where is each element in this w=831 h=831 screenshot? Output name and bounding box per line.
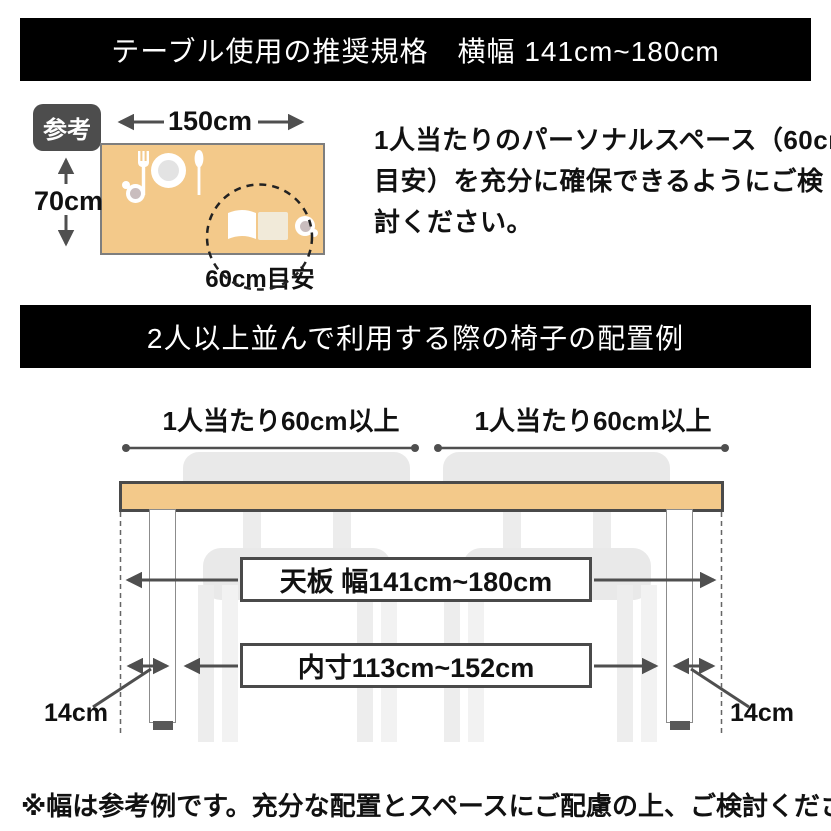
table-foot-left [153, 721, 173, 730]
cup-handle [122, 181, 130, 189]
chair-leg [641, 585, 657, 742]
note-line-2: 目安）を充分に確保できるようにご検 [374, 161, 824, 202]
tabletop-sideview [119, 481, 724, 512]
table-foot-right [670, 721, 690, 730]
chair-leg [222, 585, 238, 742]
depth-dimension-label: 70cm [34, 186, 100, 217]
plate-icon [151, 153, 186, 188]
chair-leg [617, 585, 633, 742]
reference-badge: 参考 [33, 104, 101, 151]
width-dimension-label: 150cm [160, 106, 260, 137]
note-line-3: 討ください。 [374, 202, 824, 243]
infographic-canvas: テーブル使用の推奨規格 横幅 141cm~180cm 参考 150cm 70cm… [0, 0, 831, 831]
per-person-label-left: 1人当たり60cm以上 [158, 401, 404, 438]
book-icon [227, 209, 291, 243]
plate-inner-circle [158, 160, 179, 181]
teacup-liquid [300, 221, 311, 232]
tabletop-width-box: 天板 幅141cm~180cm [240, 557, 592, 602]
footer-note: ※幅は参考例です。充分な配置とスペースにご配慮の上、ご検討ください。 [21, 786, 831, 823]
leg-inset-label-left: 14cm [38, 699, 114, 728]
note-line-1: 1人当たりのパーソナルスペース（60cm [374, 120, 824, 161]
table-leg-right [666, 509, 693, 723]
inner-width-box: 内寸113cm~152cm [240, 643, 592, 688]
teacup-icon [295, 216, 315, 236]
line-end-dot [122, 444, 130, 452]
personal-space-note: 1人当たりのパーソナルスペース（60cm 目安）を充分に確保できるようにご検 討… [374, 120, 824, 243]
chair-leg [198, 585, 214, 742]
cup-liquid [130, 188, 141, 199]
table-leg-left [149, 509, 176, 723]
knife-icon [194, 150, 204, 195]
middle-banner: 2人以上並んで利用する際の椅子の配置例 [20, 305, 811, 368]
top-banner: テーブル使用の推奨規格 横幅 141cm~180cm [20, 18, 811, 81]
cup-icon [126, 184, 145, 203]
leg-inset-label-right: 14cm [720, 699, 804, 728]
per-person-label-right: 1人当たり60cm以上 [470, 401, 716, 438]
line-end-dot [411, 444, 419, 452]
line-end-dot [721, 444, 729, 452]
line-end-dot [434, 444, 442, 452]
teacup-handle [310, 229, 318, 237]
personal-space-label: 60cm目安 [197, 259, 323, 294]
